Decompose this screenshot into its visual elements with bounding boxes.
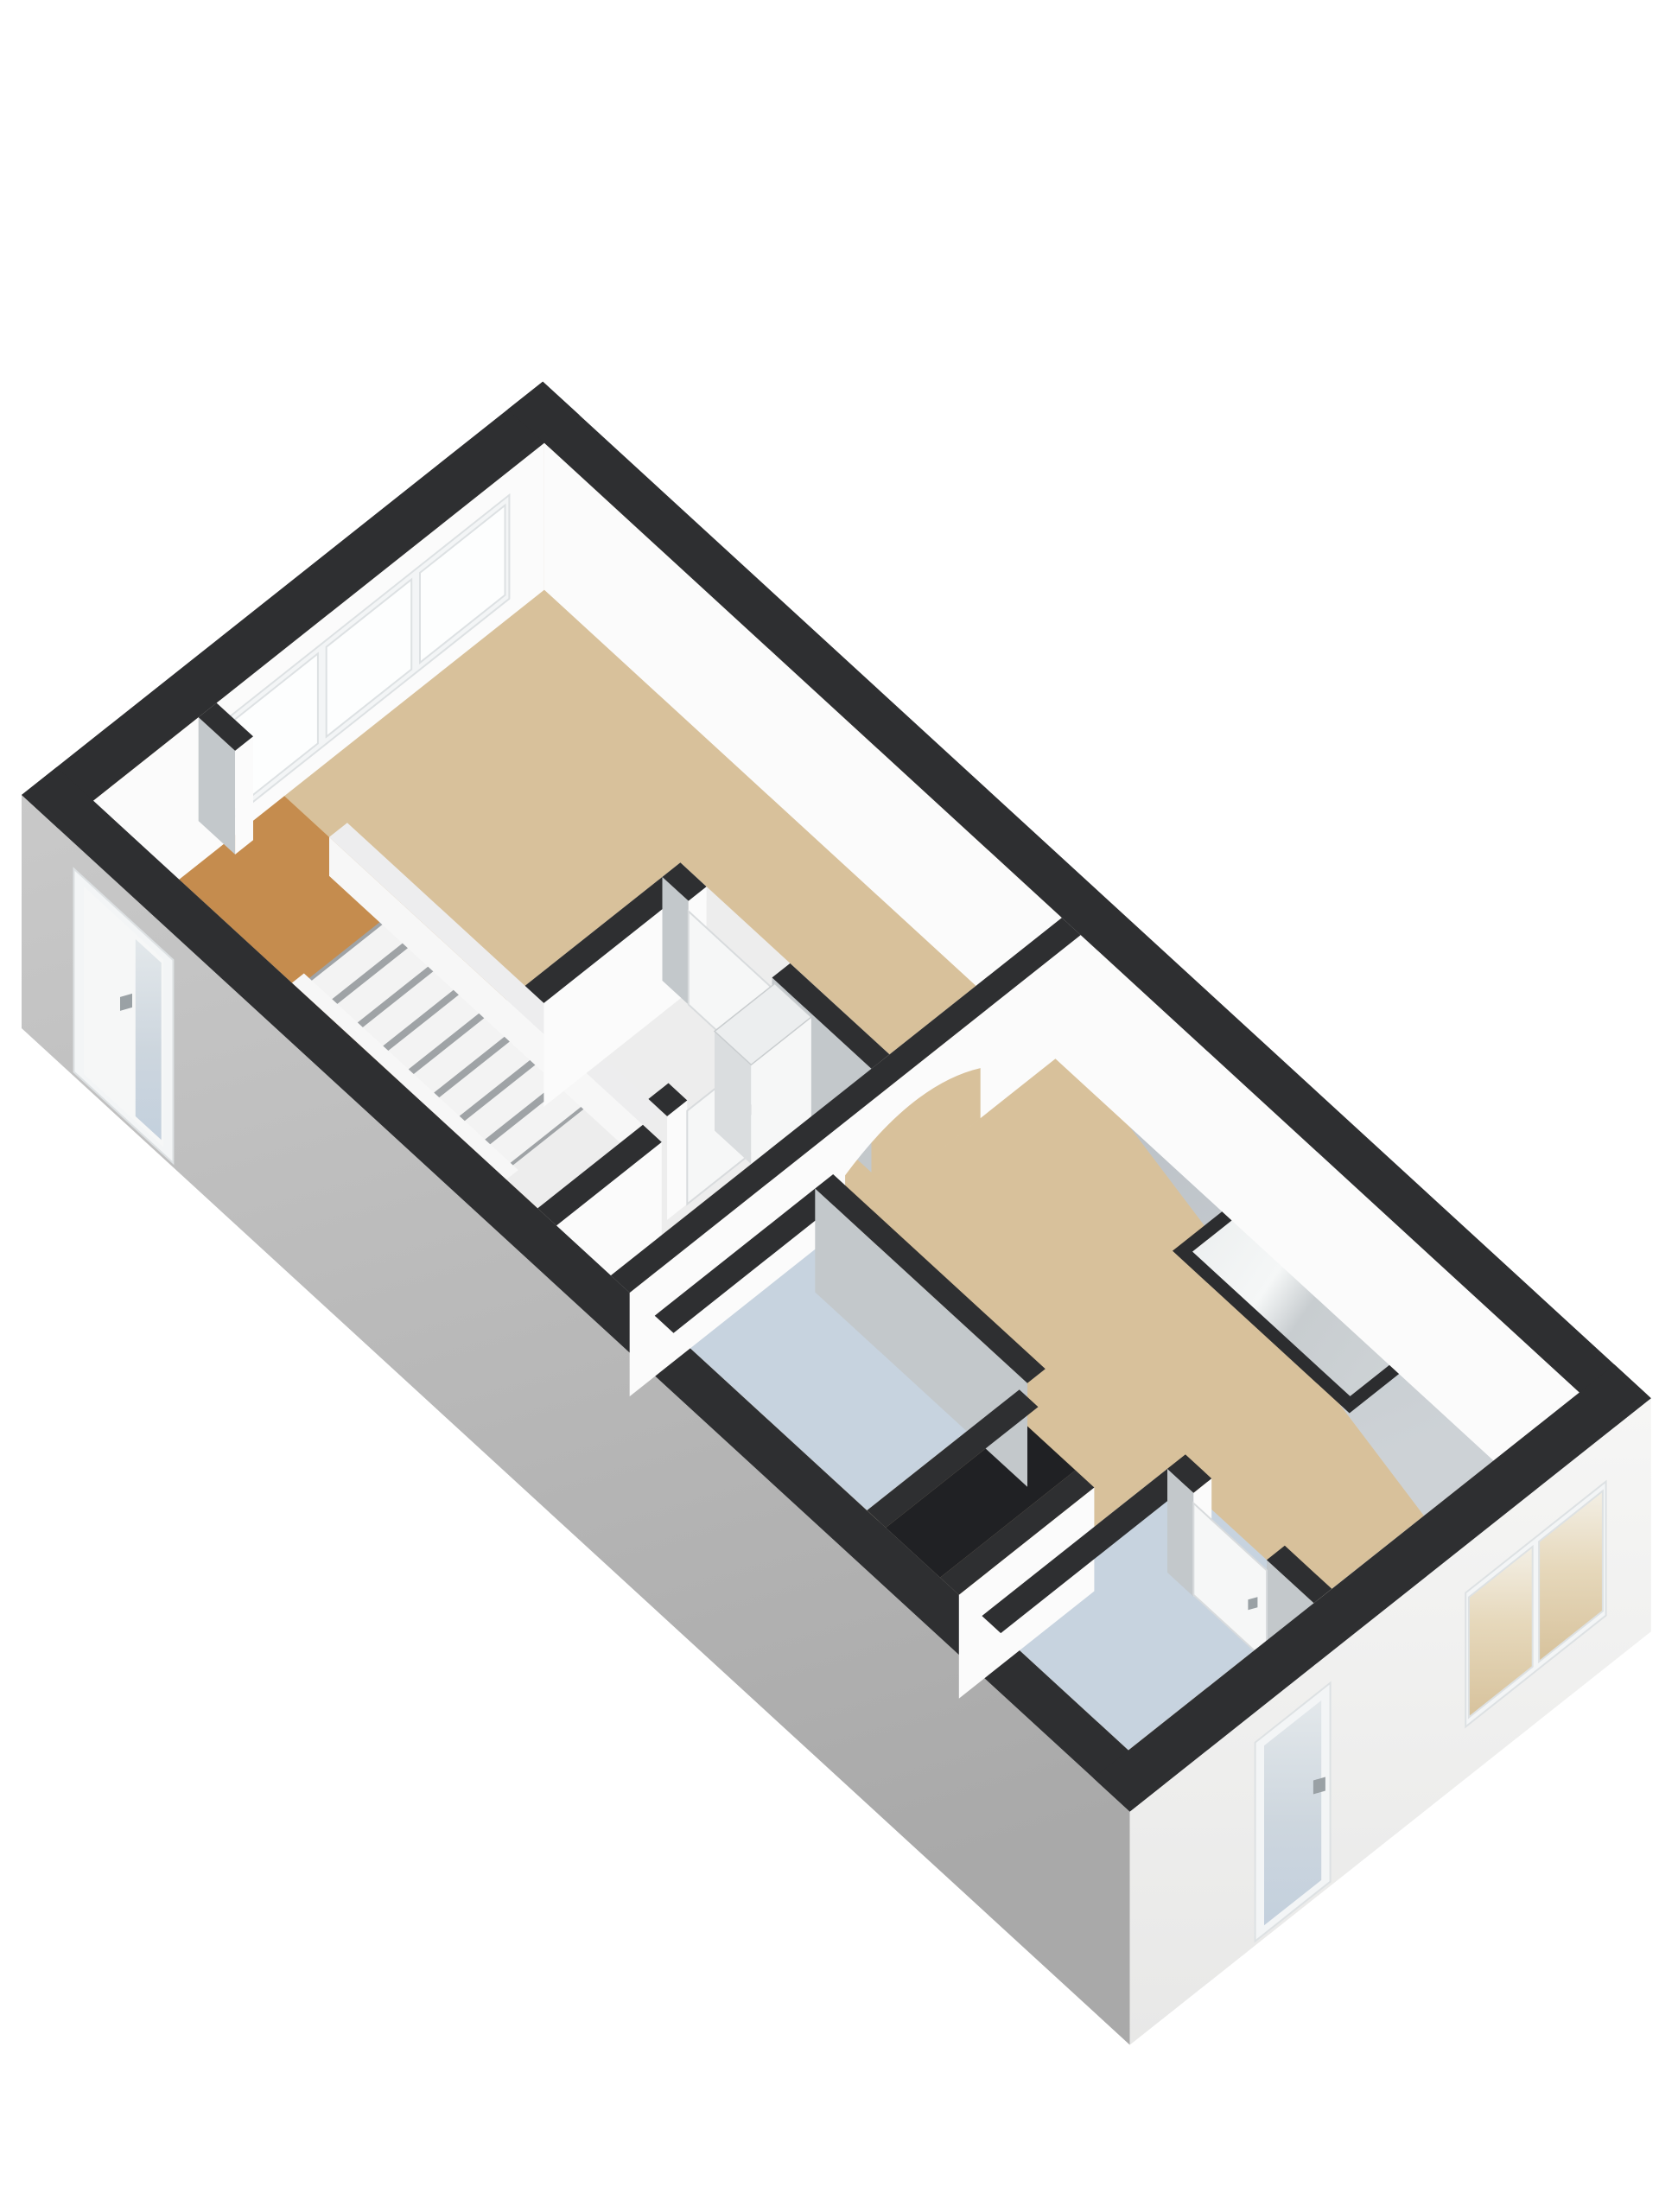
floorplan-3d-render	[0, 0, 1659, 2212]
floor-plan-3d	[0, 0, 1659, 2212]
entry-partition-wall-jamb	[235, 736, 253, 855]
cluster-divider-wall-a-face	[667, 1101, 687, 1220]
door-glass-strip	[136, 939, 162, 1140]
